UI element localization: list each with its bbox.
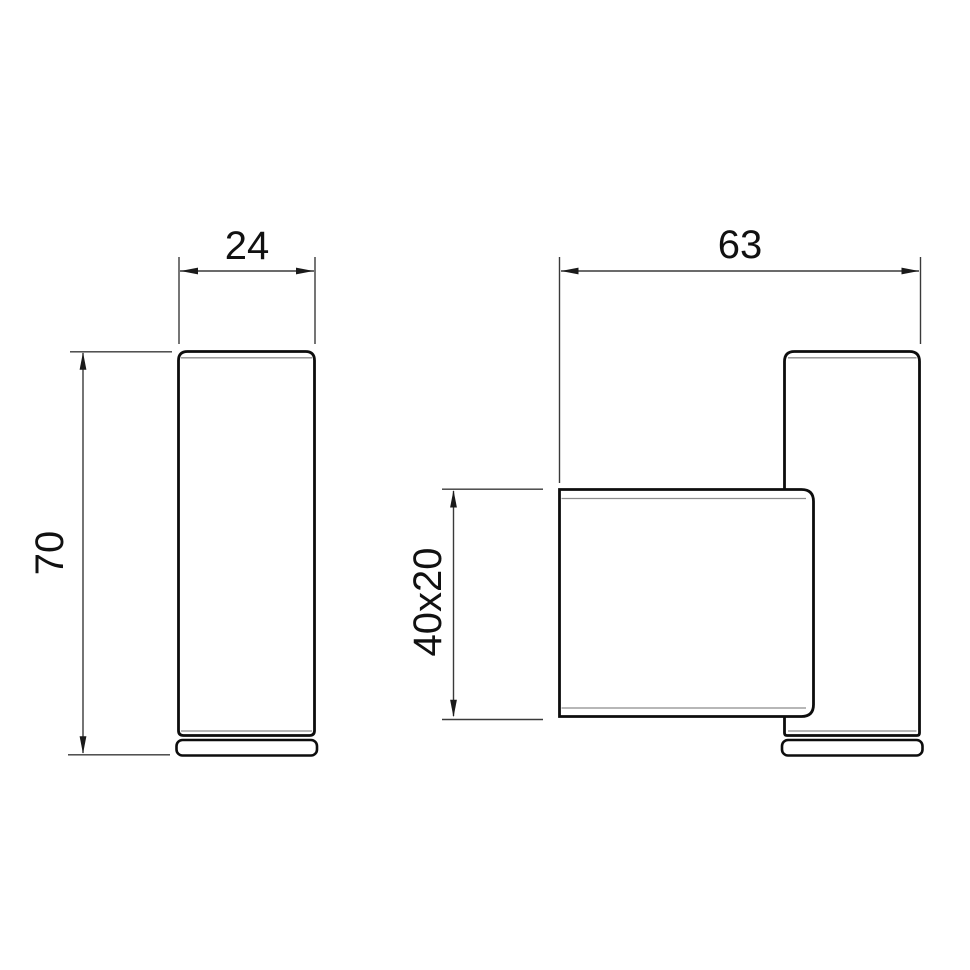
arrowhead-right <box>296 268 314 275</box>
side-base-band <box>782 740 923 756</box>
arrowhead-up <box>450 490 457 508</box>
front-base-band <box>177 740 318 756</box>
technical-drawing-canvas: 24 63 70 40x20 <box>0 0 970 970</box>
arrowhead-down <box>80 736 87 754</box>
side-hook-arm-outline <box>560 490 814 717</box>
arrowhead-left <box>561 268 579 275</box>
arrowhead-right <box>902 268 920 275</box>
dimension-label-front-height: 70 <box>30 531 70 576</box>
drawing-geometry <box>0 0 970 970</box>
front-view <box>177 352 318 756</box>
front-body-outline <box>179 352 315 736</box>
dimension-label-side-depth: 63 <box>718 225 763 265</box>
dimension-front-height <box>68 352 172 755</box>
dimension-label-front-width: 24 <box>225 226 270 266</box>
arrowhead-up <box>80 352 87 370</box>
dimension-label-hook-profile: 40x20 <box>408 548 448 657</box>
side-view <box>560 352 923 756</box>
dimension-front-width <box>179 257 315 344</box>
arrowhead-left <box>181 268 199 275</box>
dimension-hook-profile <box>442 489 543 719</box>
arrowhead-down <box>450 700 457 718</box>
